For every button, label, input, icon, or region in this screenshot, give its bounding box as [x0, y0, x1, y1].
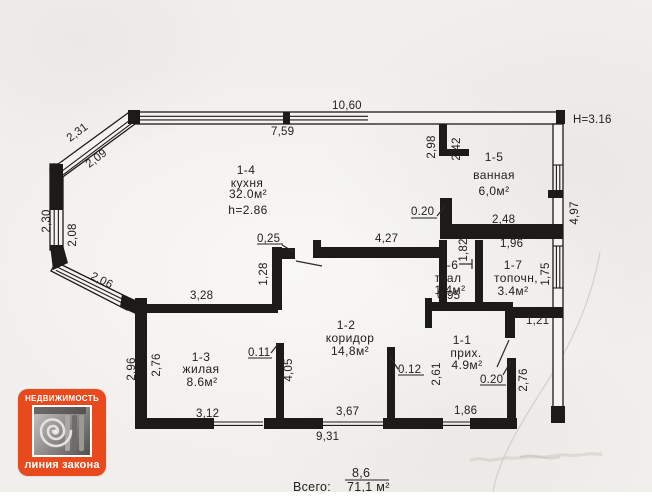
room-id: 1-4	[237, 163, 256, 177]
dim-label: 2,98	[426, 135, 438, 158]
room-name: жилая	[183, 362, 220, 376]
room-height-note: h=2.86	[228, 203, 267, 217]
paper-artifacts	[470, 252, 602, 492]
dim-label: 1,96	[500, 238, 523, 250]
building-height-note: Н=3.16	[573, 114, 612, 126]
dim-label: 1,86	[454, 405, 477, 417]
total-denominator: 71,1 м²	[347, 480, 390, 492]
room-area: 14,8м²	[331, 344, 369, 358]
dim-label: 0.11	[248, 347, 270, 359]
dim-label: 2,08	[67, 223, 79, 246]
room-area: 3.4м²	[498, 284, 529, 298]
dim-label: 2,61	[431, 362, 443, 385]
dim-label: 2,76	[151, 353, 163, 376]
room-labels: 1-4 кухня 32.0м² h=2.86 1-5 ванная 6,0м²…	[183, 150, 538, 389]
room-id: 1-6	[440, 258, 459, 272]
room-id: 1-5	[485, 150, 504, 164]
dim-label: 2,42	[451, 137, 463, 160]
dim-label: 3,12	[196, 408, 219, 420]
logo-subtitle: линия закона	[18, 459, 106, 471]
room-area: 32.0м²	[229, 187, 267, 201]
dim-label: 7,59	[271, 126, 294, 138]
dim-label: 4,97	[569, 201, 581, 224]
dim-label: 4,05	[283, 358, 295, 381]
total-area-note: Всего: 8,6 71,1 м²	[293, 466, 390, 492]
dim-label: 1,21	[526, 315, 549, 327]
kitchen-door-leaf	[296, 261, 322, 266]
dim-label: 2,31	[65, 121, 91, 145]
dim-label: 0.20	[480, 374, 503, 386]
room-name: ванная	[473, 168, 515, 182]
dim-label: 9,31	[316, 431, 339, 443]
dim-label: 1,82	[458, 238, 470, 261]
room-area: 8.6м²	[187, 375, 218, 389]
room-id: 1-1	[453, 333, 472, 347]
room-name: коридор	[326, 331, 375, 345]
dim-label: 2,48	[492, 214, 515, 226]
dim-label: 1,75	[540, 262, 552, 285]
logo-title: НЕДВИЖИМОСТЬ	[18, 394, 106, 403]
logo-column-image	[32, 405, 92, 457]
dim-label: 3,28	[190, 290, 213, 302]
dim-label: 10,60	[332, 100, 362, 112]
dim-label: 0,25	[257, 233, 280, 245]
room-area: 1.4м²	[435, 283, 466, 297]
total-numerator: 8,6	[352, 466, 370, 480]
dim-label: 2,96	[126, 357, 138, 380]
dim-label: 3,67	[336, 406, 359, 418]
total-label: Всего:	[293, 480, 331, 492]
agency-logo: НЕДВИЖИМОСТЬ линия закона	[18, 389, 106, 476]
scanned-floorplan-page: 10,60 7,59 2,31 2,09 2,30 2,08 2,06 2,96…	[0, 0, 652, 492]
dim-label: 2,30	[41, 209, 53, 232]
dim-label: 4,27	[375, 233, 398, 245]
room-id: 1-2	[337, 318, 356, 332]
dim-label: 0.20	[411, 206, 434, 218]
dim-label: 0.12	[398, 364, 421, 376]
room-name: топочн,	[494, 271, 538, 285]
room-area: 6,0м²	[479, 184, 510, 198]
room-area: 4.9м²	[452, 358, 483, 372]
room-id: 1-7	[504, 258, 523, 272]
dim-label: 2,76	[518, 368, 530, 391]
dim-label: 1,28	[258, 262, 270, 285]
ionic-column-icon	[34, 407, 86, 451]
